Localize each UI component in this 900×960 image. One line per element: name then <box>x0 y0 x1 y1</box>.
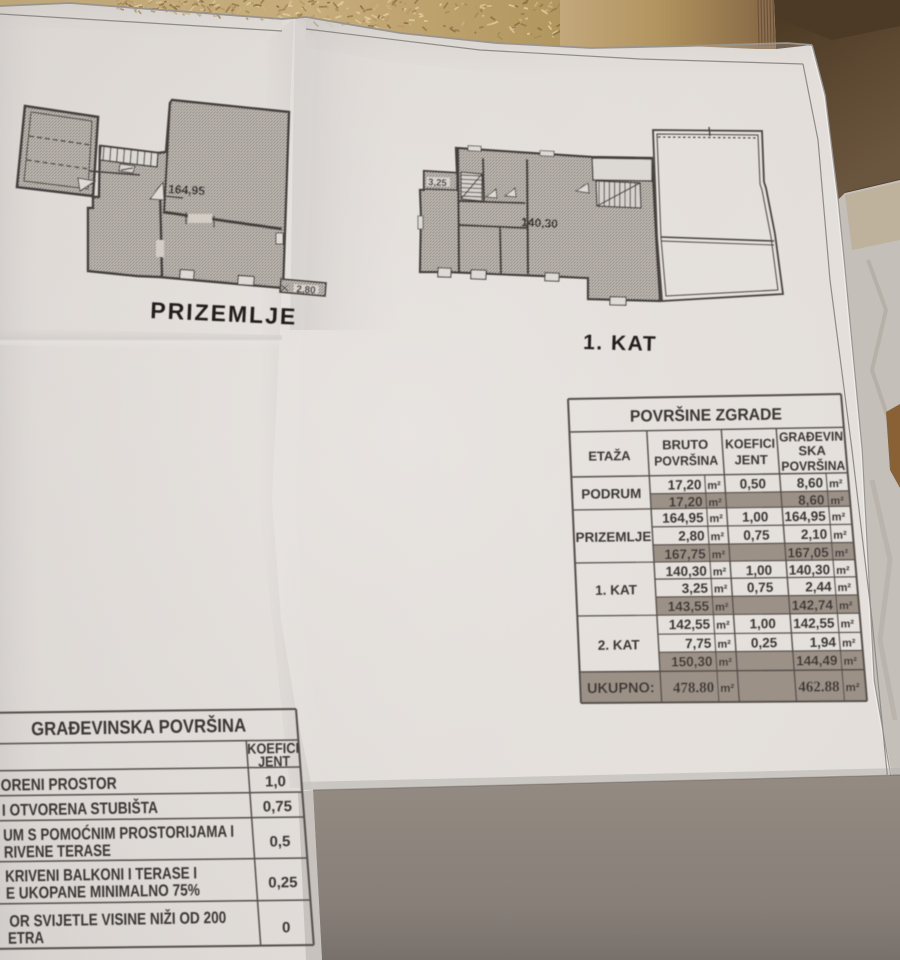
svg-text:m²: m² <box>711 531 725 543</box>
svg-text:0: 0 <box>282 919 291 936</box>
svg-text:POVRŠINA: POVRŠINA <box>654 453 719 469</box>
svg-text:2,80: 2,80 <box>678 528 704 543</box>
svg-text:478.80: 478.80 <box>673 680 714 697</box>
svg-text:2. KAT: 2. KAT <box>598 637 641 653</box>
svg-text:m²: m² <box>712 549 726 561</box>
svg-text:ORENI PROSTOR: ORENI PROSTOR <box>1 775 117 795</box>
svg-text:17,20: 17,20 <box>668 477 702 492</box>
svg-text:m²: m² <box>837 582 851 594</box>
svg-text:140,30: 140,30 <box>521 215 559 231</box>
svg-text:m²: m² <box>833 530 847 542</box>
svg-text:m²: m² <box>843 656 857 668</box>
svg-text:2,80: 2,80 <box>296 284 317 296</box>
svg-text:8,60: 8,60 <box>797 475 823 490</box>
svg-text:142,55: 142,55 <box>793 615 835 631</box>
svg-text:ETAŽA: ETAŽA <box>588 448 631 464</box>
svg-text:m²: m² <box>708 497 722 509</box>
svg-text:m²: m² <box>717 639 731 651</box>
svg-text:140,30: 140,30 <box>789 562 831 578</box>
svg-text:164,95: 164,95 <box>784 509 826 525</box>
svg-text:UKUPNO:: UKUPNO: <box>587 680 655 697</box>
svg-text:m²: m² <box>840 618 854 630</box>
svg-text:m²: m² <box>832 511 846 523</box>
svg-text:m²: m² <box>707 480 721 492</box>
svg-text:0,75: 0,75 <box>743 528 770 543</box>
svg-text:3,25: 3,25 <box>428 177 448 189</box>
svg-text:E UKOPANE MINIMALNO 75%: E UKOPANE MINIMALNO 75% <box>6 881 201 902</box>
svg-text:m²: m² <box>839 600 853 612</box>
svg-text:2,44: 2,44 <box>805 579 832 594</box>
svg-text:m²: m² <box>720 683 734 695</box>
svg-text:GRAĐEVIN: GRAĐEVIN <box>779 429 843 445</box>
svg-text:m²: m² <box>846 682 860 694</box>
svg-text:ETRA: ETRA <box>8 929 44 948</box>
svg-text:m²: m² <box>709 513 723 525</box>
svg-text:I OTVORENA STUBIŠTA: I OTVORENA STUBIŠTA <box>2 798 158 820</box>
svg-text:8,60: 8,60 <box>798 492 824 507</box>
svg-text:m²: m² <box>836 565 850 577</box>
svg-text:0,75: 0,75 <box>263 798 292 816</box>
svg-text:1. KAT: 1. KAT <box>595 582 638 598</box>
svg-text:1,00: 1,00 <box>749 616 775 631</box>
svg-text:164,95: 164,95 <box>168 182 206 198</box>
svg-text:1,00: 1,00 <box>746 563 772 578</box>
svg-text:JENT: JENT <box>734 452 767 467</box>
svg-text:142,74: 142,74 <box>792 597 834 613</box>
svg-text:PODRUM: PODRUM <box>581 486 641 502</box>
svg-text:m²: m² <box>842 637 856 649</box>
svg-text:7,75: 7,75 <box>685 636 712 651</box>
svg-text:2,10: 2,10 <box>801 527 827 542</box>
svg-text:0,25: 0,25 <box>268 874 297 892</box>
svg-text:OR SVIJETLE VISINE NIŽI OD 200: OR SVIJETLE VISINE NIŽI OD 200 <box>9 908 226 931</box>
svg-text:BRUTO: BRUTO <box>662 437 708 453</box>
svg-text:POVRŠINE ZGRADE: POVRŠINE ZGRADE <box>630 405 782 426</box>
svg-text:m²: m² <box>718 657 732 669</box>
svg-text:PRIZEMLJE: PRIZEMLJE <box>575 529 651 545</box>
svg-text:462.88: 462.88 <box>798 679 839 696</box>
svg-text:1. KAT: 1. KAT <box>583 331 658 356</box>
svg-text:RIVENE TERASE: RIVENE TERASE <box>4 842 111 862</box>
svg-text:3,25: 3,25 <box>682 581 709 596</box>
svg-text:167,05: 167,05 <box>787 545 829 561</box>
svg-text:1,0: 1,0 <box>265 773 286 790</box>
svg-text:0,50: 0,50 <box>740 476 766 491</box>
svg-text:GRAĐEVINSKA POVRŠINA: GRAĐEVINSKA POVRŠINA <box>31 715 247 741</box>
svg-text:m²: m² <box>830 495 844 507</box>
svg-text:164,95: 164,95 <box>662 510 704 526</box>
svg-text:m²: m² <box>835 548 849 560</box>
svg-text:0,75: 0,75 <box>747 580 774 595</box>
svg-text:SKA: SKA <box>798 443 826 458</box>
svg-text:142,55: 142,55 <box>669 617 711 633</box>
svg-text:m²: m² <box>713 566 727 578</box>
svg-text:17,20: 17,20 <box>669 494 703 509</box>
svg-text:m²: m² <box>829 478 843 490</box>
svg-text:m²: m² <box>714 583 728 595</box>
svg-text:m²: m² <box>716 620 730 632</box>
svg-text:0,25: 0,25 <box>751 635 778 650</box>
svg-text:1,00: 1,00 <box>742 509 768 524</box>
svg-text:144,49: 144,49 <box>796 653 838 669</box>
svg-text:167,75: 167,75 <box>664 546 706 562</box>
svg-text:1,94: 1,94 <box>810 635 837 650</box>
svg-text:143,55: 143,55 <box>668 599 710 615</box>
svg-text:140,30: 140,30 <box>665 564 707 580</box>
svg-text:0,5: 0,5 <box>269 833 290 850</box>
svg-text:KOEFICI: KOEFICI <box>725 436 775 452</box>
svg-text:POVRŠINA: POVRŠINA <box>781 458 846 474</box>
svg-text:150,30: 150,30 <box>671 654 713 670</box>
svg-text:JENT: JENT <box>258 754 290 771</box>
svg-text:UM S POMOĆNIM PROSTORIJAMA I: UM S POMOĆNIM PROSTORIJAMA I <box>3 822 234 845</box>
svg-text:m²: m² <box>715 601 729 613</box>
